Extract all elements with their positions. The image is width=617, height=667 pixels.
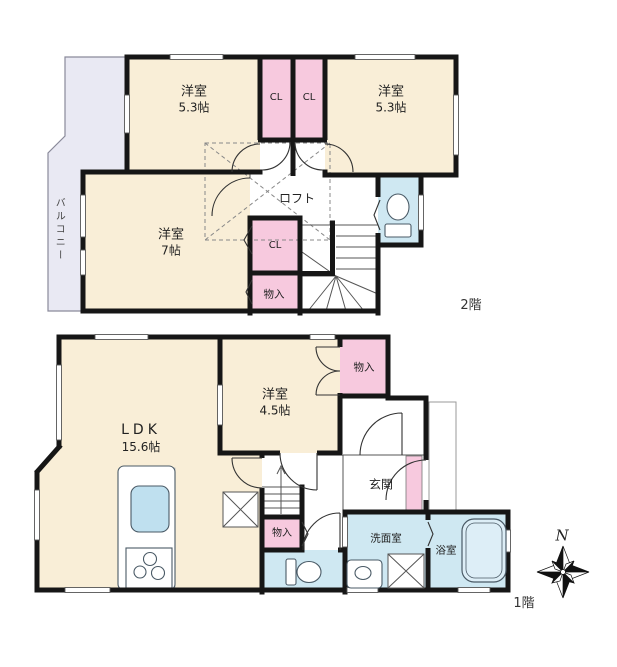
label-closet-left-2f: CL	[270, 92, 283, 105]
label-floor-2: 2階	[460, 298, 481, 314]
label-ldk: LDK 15.6帖	[121, 422, 161, 455]
bathtub-icon	[462, 519, 506, 582]
compass-north-label: N	[555, 527, 568, 546]
compass-rose	[537, 546, 589, 598]
label-entrance: 玄関	[369, 478, 393, 493]
ldk-name: LDK	[121, 422, 161, 440]
vanity-sink-icon	[347, 560, 382, 588]
label-storage-top-1f: 物入	[354, 361, 375, 374]
label-bedroom-main-2f: 洋室 7帖	[158, 227, 184, 258]
label-closet-mid-2f: CL	[269, 240, 282, 253]
label-storage-2f: 物入	[264, 288, 285, 301]
ldk-size: 15.6帖	[121, 439, 161, 454]
bedroom-right-2f-size: 5.3帖	[375, 101, 406, 116]
toilet-icon-1f	[286, 559, 321, 585]
label-balcony: バルコニー	[52, 198, 65, 263]
label-bedroom-1f: 洋室 4.5帖	[259, 387, 290, 418]
bedroom-1f-name: 洋室	[259, 387, 290, 403]
stove-icon	[126, 548, 172, 588]
bedroom-left-2f-size: 5.3帖	[178, 101, 209, 116]
label-floor-1: 1階	[513, 596, 534, 612]
label-closet-right-2f: CL	[303, 92, 316, 105]
room-bedroom-right-2f	[325, 57, 456, 175]
floor-plan: 洋室 5.3帖 洋室 5.3帖 CL CL ロフト 洋室 7帖 CL 物入 バル…	[0, 0, 617, 667]
bedroom-main-2f-name: 洋室	[158, 227, 184, 243]
label-bathroom: 浴室	[436, 544, 457, 557]
label-loft: ロフト	[279, 192, 315, 207]
label-storage-stair-1f: 物入	[272, 528, 292, 541]
bedroom-right-2f-name: 洋室	[375, 84, 406, 100]
entrance-porch	[429, 402, 456, 510]
label-bedroom-right-2f: 洋室 5.3帖	[375, 84, 406, 115]
storage-hatch-box	[223, 492, 258, 527]
bedroom-main-2f-size: 7帖	[158, 244, 184, 259]
kitchen-sink	[131, 486, 169, 532]
label-washroom: 洗面室	[370, 532, 402, 545]
bedroom-1f-size: 4.5帖	[259, 404, 290, 419]
bedroom-left-2f-name: 洋室	[178, 84, 209, 100]
washing-machine-icon	[388, 554, 424, 588]
kitchen-counter	[118, 466, 175, 590]
label-bedroom-left-2f: 洋室 5.3帖	[178, 84, 209, 115]
